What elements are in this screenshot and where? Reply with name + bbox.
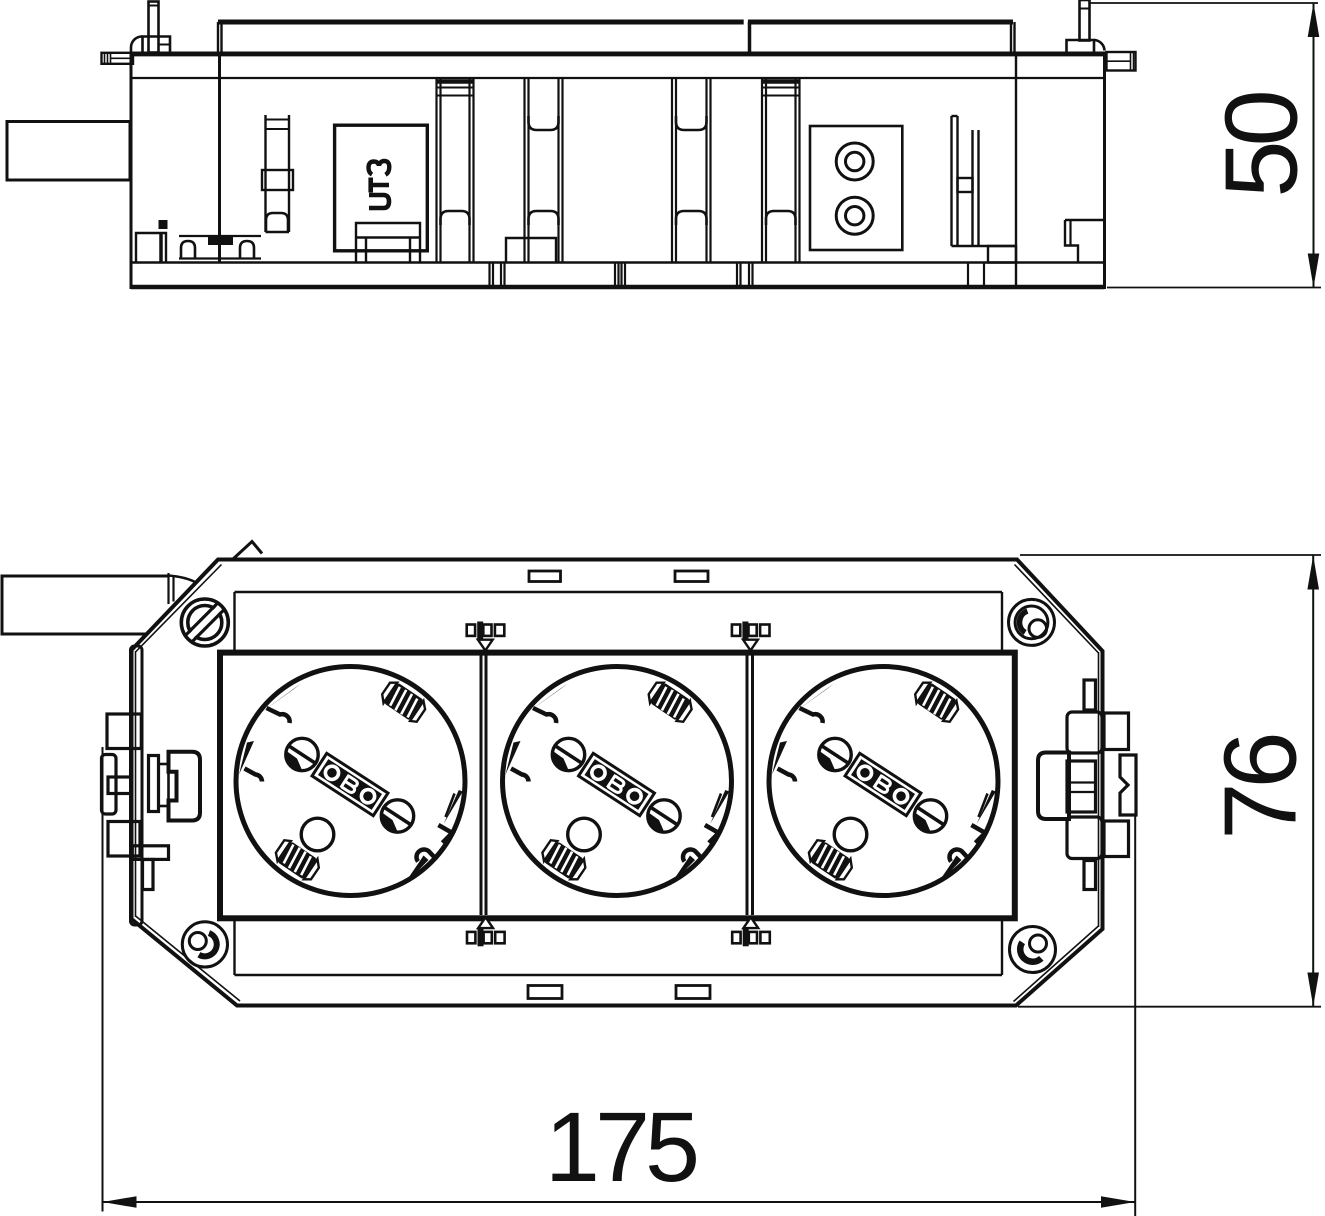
svg-text:50: 50 (1204, 93, 1319, 198)
svg-text:175: 175 (545, 1091, 696, 1202)
svg-text:76: 76 (1203, 736, 1318, 840)
